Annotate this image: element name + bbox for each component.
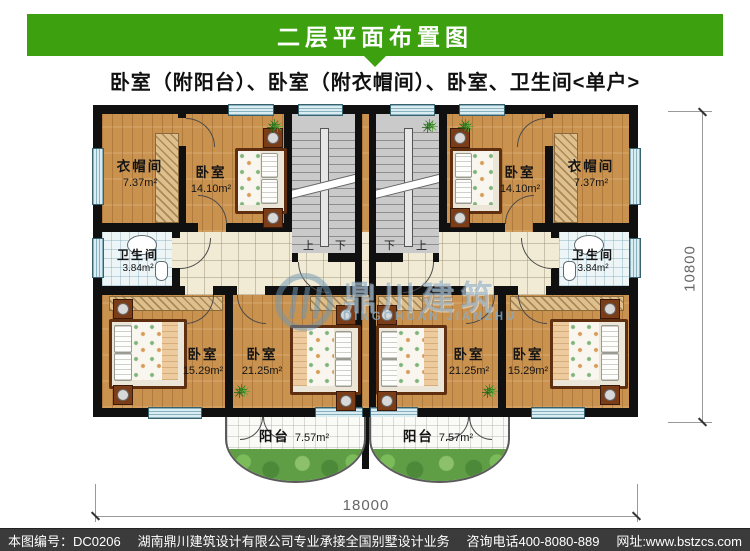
wall-segment <box>546 286 638 295</box>
plant-icon: ✳ <box>423 118 436 133</box>
window-icon <box>390 104 435 116</box>
window-icon <box>228 104 274 116</box>
wall-segment <box>498 295 506 408</box>
dimension-line <box>95 516 638 517</box>
dimension-height: 10800 <box>682 239 699 299</box>
wall-segment <box>172 232 180 238</box>
footer-company: 湖南鼎川建筑设计有限公司专业承接全国别墅设计业务 <box>138 531 450 550</box>
nightstand-icon <box>450 208 470 228</box>
wall-segment <box>545 146 553 223</box>
wall-segment <box>439 114 447 223</box>
stair-up-label: 上 <box>416 237 427 253</box>
wall-segment <box>93 105 638 114</box>
wall-segment <box>178 114 186 118</box>
wall-segment <box>213 286 237 295</box>
room-label-bedroom-blc: 卧室 21.25m² <box>235 343 289 377</box>
wall-segment <box>93 286 185 295</box>
room-label-closet-tr: 衣帽间 7.37m² <box>553 155 629 189</box>
footer-website: 网址:www.bstzcs.com <box>616 531 742 550</box>
subtitle: 卧室（附阳台）、卧室（附衣帽间）、卧室、卫生间<单户> <box>0 66 750 95</box>
stair-down-label: 下 <box>384 237 395 253</box>
double-bed-icon <box>235 148 287 214</box>
page-title-bar: 二层平面布置图 <box>27 14 723 56</box>
plant-icon: ✳ <box>268 118 281 133</box>
nightstand-icon <box>113 385 133 405</box>
wall-segment <box>93 223 198 232</box>
wall-segment <box>376 253 403 262</box>
wall-segment <box>369 105 376 417</box>
wall-segment <box>533 223 638 232</box>
room-label-balcony-r: 阳台 7.57m² <box>379 425 497 445</box>
room-label-closet-tl: 衣帽间 7.37m² <box>102 155 178 189</box>
double-bed-icon <box>109 319 187 389</box>
dimension-line <box>702 112 703 423</box>
plant-icon: ✳ <box>235 383 248 398</box>
dimension-extension-line <box>668 111 712 112</box>
nightstand-icon <box>113 299 133 319</box>
balcony-plants <box>371 449 508 481</box>
footer-bar: 本图编号：DC0206 湖南鼎川建筑设计有限公司专业承接全国别墅设计业务 咨询电… <box>0 528 750 551</box>
wall-segment <box>292 253 298 262</box>
wall-segment <box>439 223 505 232</box>
dimension-width: 18000 <box>336 497 396 514</box>
room-label-bedroom-bl: 卧室 15.29m² <box>181 343 225 377</box>
footer-phone: 咨询电话400-8080-889 <box>466 531 599 550</box>
wall-segment <box>551 232 559 238</box>
room-label-bath-r: 卫生间 3.84m² <box>557 246 629 274</box>
window-icon <box>629 238 641 278</box>
window-icon <box>531 407 585 419</box>
nightstand-icon <box>377 305 397 325</box>
nightstand-icon <box>336 391 356 411</box>
window-icon <box>148 407 202 419</box>
stair-down-label: 下 <box>335 237 346 253</box>
room-label-bedroom-tr: 卧室 14.10m² <box>494 161 546 195</box>
double-bed-icon <box>290 325 361 395</box>
room-label-bath-l: 卫生间 3.84m² <box>102 246 174 274</box>
room-label-balcony-l: 阳台 7.57m² <box>235 425 353 445</box>
balcony-plants <box>227 449 364 481</box>
wall-segment <box>545 114 553 118</box>
plant-icon: ✳ <box>459 118 472 133</box>
wall-segment <box>328 253 355 262</box>
window-icon <box>629 148 641 205</box>
window-icon <box>459 104 505 116</box>
stair-up-label: 上 <box>303 237 314 253</box>
nightstand-icon <box>336 305 356 325</box>
plant-icon: ✳ <box>483 383 496 398</box>
nightstand-icon <box>263 208 283 228</box>
page-title: 二层平面布置图 <box>277 18 473 52</box>
room-label-bedroom-tl: 卧室 14.10m² <box>185 161 237 195</box>
page: 二层平面布置图 卧室（附阳台）、卧室（附衣帽间）、卧室、卫生间<单户> 上 下 … <box>0 0 750 551</box>
staircase-left <box>292 114 355 253</box>
room-label-bedroom-brc: 卧室 21.25m² <box>442 343 496 377</box>
wall-segment <box>265 286 466 295</box>
staircase-right <box>376 114 439 253</box>
wall-segment <box>433 253 439 262</box>
wall-segment <box>225 295 233 408</box>
double-bed-icon <box>376 325 447 395</box>
nightstand-icon <box>600 385 620 405</box>
footer-plan-no: 本图编号：DC0206 <box>8 531 121 550</box>
nightstand-icon <box>377 391 397 411</box>
room-label-bedroom-br: 卧室 15.29m² <box>506 343 550 377</box>
nightstand-icon <box>600 299 620 319</box>
floor-plan: 上 下 下 上 <box>85 103 670 498</box>
double-bed-icon <box>550 319 628 389</box>
wall-segment <box>494 286 518 295</box>
window-icon <box>298 104 343 116</box>
